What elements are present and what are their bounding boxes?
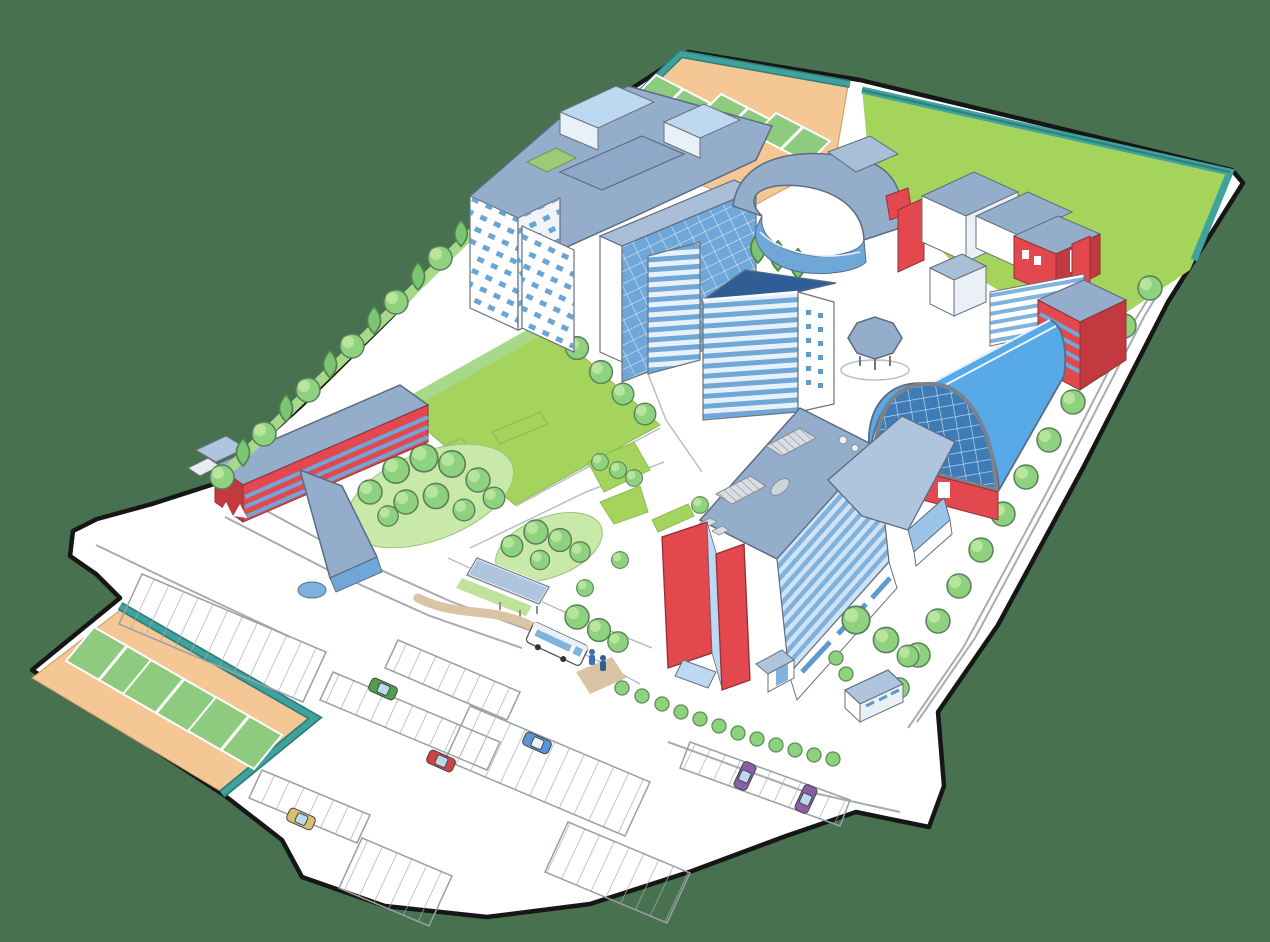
gazebo-roof: [848, 317, 902, 359]
tree-icon: [570, 542, 590, 562]
tree-icon: [378, 506, 398, 526]
tree-icon: [428, 246, 452, 270]
red-slab: [898, 198, 924, 272]
tree-icon: [873, 627, 898, 652]
tree-icon: [439, 451, 465, 477]
tree-icon: [296, 378, 320, 402]
bush-icon: [839, 667, 853, 681]
tower-annex-glass: [648, 242, 700, 374]
tree-icon: [1014, 465, 1038, 489]
tree-icon: [626, 470, 643, 487]
tree-icon: [577, 580, 594, 597]
tree-icon: [453, 499, 475, 521]
glass-tower-facade: [703, 292, 798, 420]
roof-vent: [852, 445, 859, 452]
bush-icon: [826, 752, 840, 766]
tree-icon: [947, 574, 971, 598]
tree-icon: [483, 487, 505, 509]
red-tower-core: [716, 544, 750, 690]
tree-icon: [592, 454, 609, 471]
small-blue-kiosk: [298, 582, 326, 598]
roof-vent: [839, 436, 847, 444]
bush-icon: [655, 697, 669, 711]
tree-icon: [252, 422, 276, 446]
tree-icon: [969, 538, 993, 562]
tree-icon: [501, 535, 523, 557]
bush-icon: [807, 748, 821, 762]
tree-icon: [1037, 428, 1061, 452]
tree-icon: [897, 645, 919, 667]
dome-base-door: [938, 482, 950, 498]
tree-icon: [842, 606, 870, 634]
tree-icon: [383, 457, 409, 483]
tree-icon: [588, 619, 611, 642]
bush-icon: [769, 738, 783, 752]
bush-icon: [731, 726, 745, 740]
tree-icon: [608, 632, 628, 652]
tree-icon: [926, 609, 950, 633]
tree-icon: [1061, 390, 1085, 414]
bush-icon: [615, 681, 629, 695]
tree-icon: [549, 529, 572, 552]
bush-icon: [693, 712, 707, 726]
tower-glass-sliver: [600, 236, 622, 362]
bush-icon: [635, 689, 649, 703]
tree-icon: [590, 361, 613, 384]
red-box-window: [1034, 256, 1041, 265]
glass-tower-pier: [798, 292, 834, 412]
map-canvas: [0, 0, 1270, 942]
tree-icon: [210, 465, 234, 489]
tower-wall-sw-windows: [470, 196, 518, 330]
red-tower-core: [662, 522, 712, 668]
tree-icon: [394, 490, 418, 514]
tree-icon: [565, 605, 589, 629]
tree-icon: [340, 334, 364, 358]
tree-icon: [634, 403, 656, 425]
tree-icon: [466, 468, 490, 492]
bush-icon: [788, 743, 802, 757]
tree-icon: [612, 383, 634, 405]
person: [589, 649, 595, 665]
tree-icon: [384, 290, 408, 314]
campus-map-illustration: [0, 0, 1270, 942]
bush-icon: [674, 705, 688, 719]
bush-icon: [829, 651, 843, 665]
bush-icon: [712, 719, 726, 733]
tree-icon: [423, 483, 448, 508]
tree-icon: [610, 462, 627, 479]
red-box-window: [1022, 250, 1029, 259]
tree-icon: [530, 550, 549, 569]
tree-icon: [1138, 276, 1162, 300]
tree-icon: [524, 520, 548, 544]
bush-icon: [750, 732, 764, 746]
person: [600, 655, 606, 671]
tree-icon: [358, 480, 382, 504]
tree-icon: [692, 497, 709, 514]
tree-icon: [612, 552, 629, 569]
